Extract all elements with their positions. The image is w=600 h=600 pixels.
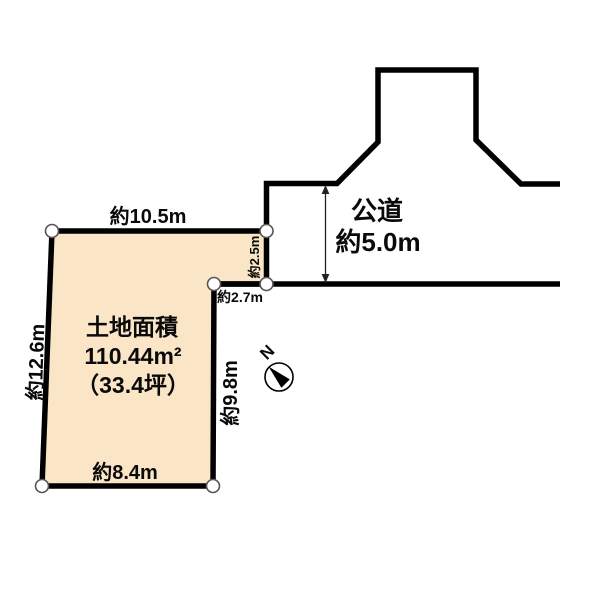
dim-label-left: 約12.6m [23,323,50,401]
dim-label-right: 約9.8m [218,360,242,426]
dim-label-top: 約10.5m [110,204,187,228]
compass: N [256,341,293,391]
dim-label-step: 約2.7m [217,289,263,305]
area-square-meters: 110.44m² [84,343,182,369]
vertex-marker [46,225,59,238]
road-width-arrowhead-up [322,185,330,194]
plot-diagram-svg: 約10.5m 約12.6m 約8.4m 約9.8m 約2.5m 約2.7m 土地… [0,0,600,600]
road-width-arrow [322,185,330,283]
area-tsubo: （33.4坪） [76,372,190,398]
road-text: 公道 約5.0m [335,196,420,257]
road-upper-boundary-line [267,70,561,231]
vertex-marker [36,480,49,493]
land-plot-diagram: 約10.5m 約12.6m 約8.4m 約9.8m 約2.5m 約2.7m 土地… [0,0,600,600]
dim-label-right-upper: 約2.5m [247,236,262,279]
vertex-marker [207,480,220,493]
road-name-label: 公道 [351,196,403,226]
parcel-area-text: 土地面積 110.44m² （33.4坪） [76,314,190,398]
area-title: 土地面積 [86,314,179,340]
dim-label-bottom: 約8.4m [92,460,158,484]
compass-north-label: N [256,341,278,363]
road-width-label: 約5.0m [335,227,420,257]
vertex-marker [260,225,273,238]
